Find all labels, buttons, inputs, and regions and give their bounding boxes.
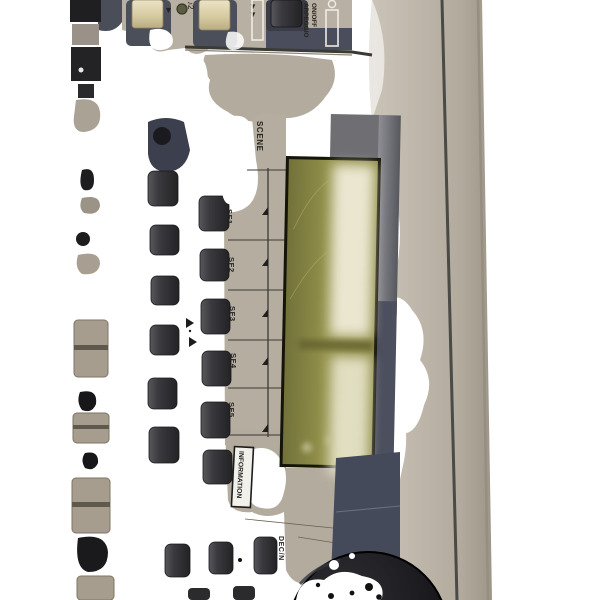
slider-cap-line <box>74 345 108 350</box>
panel-button <box>151 276 179 305</box>
scene-label: SCENE <box>255 121 264 152</box>
sf-button <box>203 450 232 484</box>
sf-button <box>201 402 230 438</box>
panel-button <box>254 537 277 574</box>
blob-fragment <box>76 232 90 246</box>
dec-no-label: DEC/N <box>277 536 284 561</box>
white-splatter-dot <box>329 560 339 570</box>
key-highlight <box>79 68 84 73</box>
panel-button <box>165 544 190 577</box>
arpeggio-label: ARPEGGIO <box>302 3 309 37</box>
slider-cap <box>77 576 114 600</box>
lcd-glare <box>329 164 375 337</box>
sf-button <box>201 299 230 334</box>
photo-scene: ▼ ♪2 ▼ ▼ ARPEGGIO ON/OFF SCENE S <box>0 0 600 600</box>
panel-button <box>150 325 179 355</box>
key-fragment <box>78 84 94 98</box>
note-tempo-mark: ♪2 <box>186 1 195 10</box>
panel-fragment-navy <box>148 118 190 172</box>
panel-button <box>150 225 179 255</box>
slider-cap-line <box>72 502 110 507</box>
panel-button <box>209 542 233 574</box>
black-splatter-dot <box>376 594 382 600</box>
panel-button <box>149 427 179 463</box>
black-splatter-dot <box>365 583 373 591</box>
white-paint-blob <box>176 54 208 95</box>
sf-button <box>200 249 229 281</box>
lcd-contrast-line <box>299 339 373 351</box>
down-triangle-icon: ▼ <box>164 5 173 15</box>
key-fragment <box>71 47 101 81</box>
white-splatter-dot <box>349 553 355 559</box>
black-splatter-dot <box>350 591 355 596</box>
black-splatter-dot <box>316 583 320 587</box>
arpeggio-on-off-button <box>271 0 302 27</box>
panel-button-partial <box>188 588 210 600</box>
sf-button <box>199 196 229 231</box>
blob-fragment <box>78 391 96 411</box>
lcd-bezel-cap <box>330 114 381 163</box>
double-down-triangle-icon: ▼ <box>249 10 257 19</box>
panel-button-partial <box>233 586 255 600</box>
led-dot-icon <box>177 4 187 14</box>
key-fragment <box>70 0 101 22</box>
black-splatter-dot <box>238 558 242 562</box>
sf-button <box>202 351 231 386</box>
knob-corner <box>153 127 171 145</box>
blob-fragment <box>80 169 94 190</box>
panel-button <box>148 378 177 409</box>
dot-mark <box>189 330 191 332</box>
lcd-assembly <box>279 113 401 475</box>
black-splatter-dot <box>328 593 334 599</box>
slider-cap-line <box>73 425 109 429</box>
key-fragment <box>72 24 99 45</box>
arpeggio-onoff-label: ON/OFF <box>310 3 317 27</box>
cream-panel-button <box>132 0 163 28</box>
cream-panel-button <box>199 0 230 30</box>
panel-button <box>148 171 178 206</box>
blob-fragment <box>80 197 100 214</box>
information-label-group: INFORMATION <box>231 447 253 508</box>
used-synthesizer-product-photo: ▼ ♪2 ▼ ▼ ARPEGGIO ON/OFF SCENE S <box>0 0 600 600</box>
